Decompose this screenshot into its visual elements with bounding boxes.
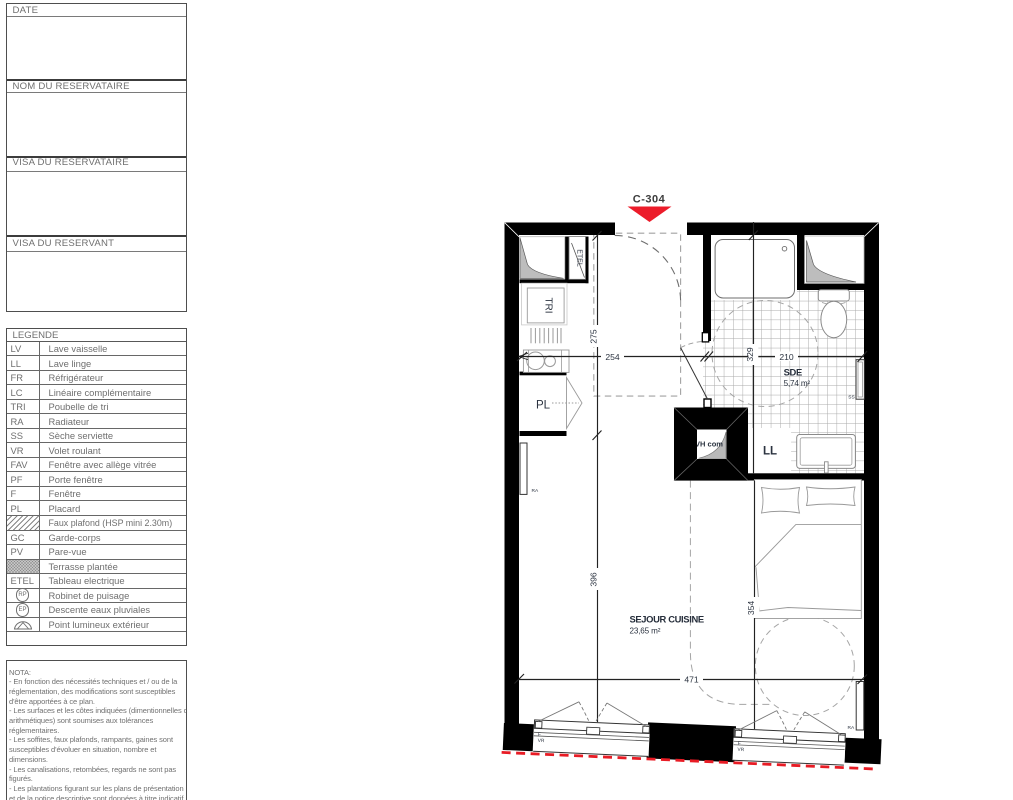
- svg-text:329: 329: [745, 347, 755, 362]
- svg-text:C-304: C-304: [633, 194, 666, 206]
- svg-text:275: 275: [589, 329, 599, 344]
- svg-text:210: 210: [779, 352, 794, 362]
- svg-text:ETEL: ETEL: [576, 249, 583, 267]
- svg-text:254: 254: [605, 352, 620, 362]
- svg-text:PL: PL: [536, 400, 551, 412]
- svg-text:LL: LL: [763, 446, 777, 458]
- svg-text:VR: VR: [737, 747, 744, 753]
- svg-text:RA: RA: [532, 488, 539, 494]
- svg-text:396: 396: [589, 572, 599, 587]
- svg-text:F: F: [538, 732, 541, 738]
- svg-text:23,65 m²: 23,65 m²: [630, 627, 661, 636]
- svg-text:354: 354: [746, 601, 756, 616]
- svg-text:5,74 m²: 5,74 m²: [784, 379, 811, 388]
- svg-text:471: 471: [684, 674, 699, 684]
- svg-text:F: F: [738, 741, 741, 747]
- svg-text:RA: RA: [848, 725, 855, 731]
- svg-text:SDE: SDE: [784, 367, 802, 378]
- svg-text:SS: SS: [848, 395, 854, 401]
- svg-text:VH com: VH com: [695, 440, 723, 449]
- svg-text:TRI: TRI: [543, 297, 554, 313]
- svg-text:VR: VR: [538, 738, 545, 744]
- svg-text:SEJOUR CUISINE: SEJOUR CUISINE: [630, 614, 704, 625]
